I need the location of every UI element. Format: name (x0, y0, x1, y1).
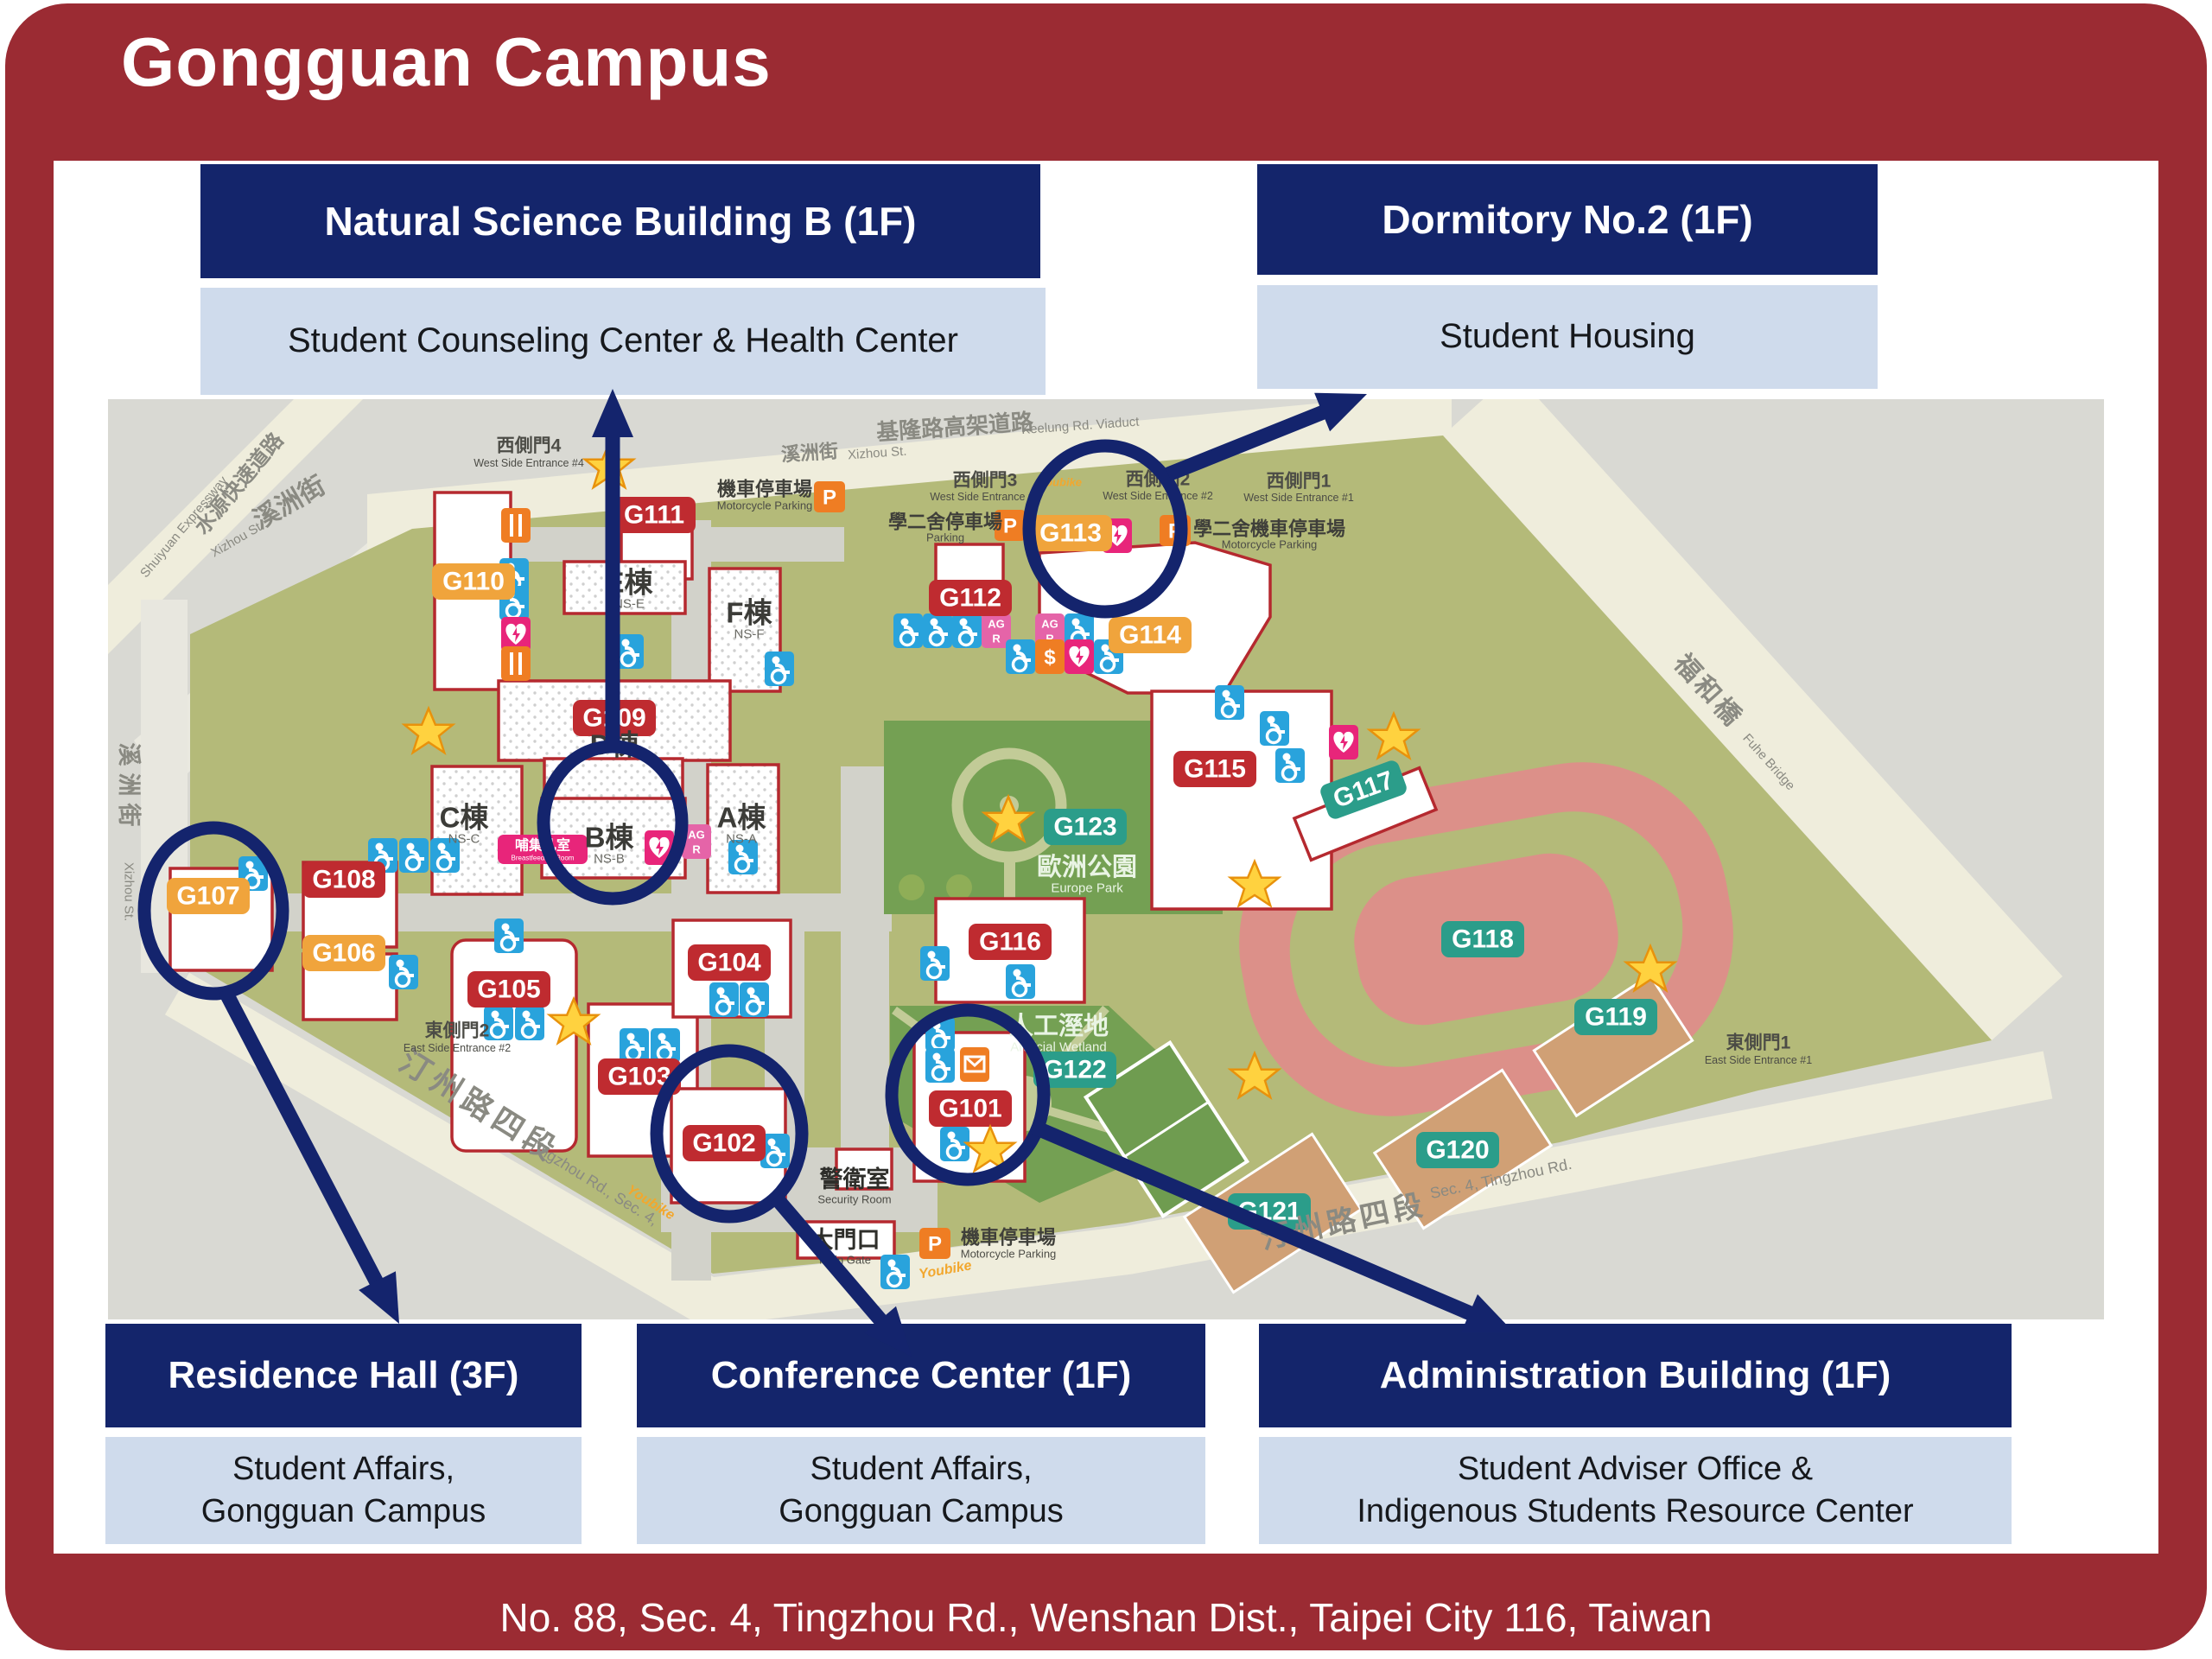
svg-text:G110: G110 (442, 568, 505, 596)
svg-text:E棟: E棟 (605, 567, 653, 599)
callout-residence-line1: Student Affairs, (232, 1448, 454, 1491)
badge-g104: G104 (688, 944, 771, 981)
svg-text:East Side Entrance #2: East Side Entrance #2 (404, 1042, 511, 1054)
callout-conference-subtitle: Student Affairs, Gongguan Campus (637, 1437, 1205, 1544)
svg-text:G106: G106 (312, 939, 375, 968)
badge-g114: G114 (1109, 617, 1192, 653)
label-wetland: 人工溼地Artificial Wetland (1008, 1012, 1109, 1055)
svg-text:學二舍停車場: 學二舍停車場 (888, 512, 1002, 533)
callout-administration-title-text: Administration Building (1F) (1380, 1354, 1891, 1397)
svg-text:G108: G108 (312, 866, 375, 894)
svg-text:哺集乳室: 哺集乳室 (515, 837, 570, 854)
svg-text:G115: G115 (1184, 755, 1246, 784)
svg-text:G112: G112 (939, 584, 1001, 613)
callout-natural-science-title: Natural Science Building B (1F) (200, 164, 1040, 278)
svg-text:溪洲街: 溪洲街 (116, 743, 142, 834)
svg-text:西側門3: 西側門3 (953, 471, 1018, 491)
svg-text:機車停車場: 機車停車場 (717, 479, 812, 500)
svg-text:歐洲公園: 歐洲公園 (1037, 853, 1137, 881)
campus-map-svg: P AG R $ (108, 399, 2104, 1319)
svg-text:Motorcycle Parking: Motorcycle Parking (961, 1248, 1057, 1261)
badge-g101: G101 (929, 1090, 1012, 1127)
svg-text:Main Gate: Main Gate (819, 1254, 871, 1267)
callout-natural-science-title-text: Natural Science Building B (1F) (325, 198, 917, 245)
badge-g107: G107 (167, 878, 250, 914)
callout-administration-line1: Student Adviser Office & (1458, 1448, 1813, 1491)
svg-text:Parking: Parking (926, 531, 964, 544)
callout-residence-title: Residence Hall (3F) (105, 1324, 582, 1427)
address-bar: No. 88, Sec. 4, Tingzhou Rd., Wenshan Di… (0, 1585, 2212, 1650)
callout-conference-line2: Gongguan Campus (779, 1491, 1064, 1533)
svg-text:Security Room: Security Room (817, 1193, 891, 1206)
svg-text:G111: G111 (624, 501, 684, 530)
breastfeeding-room-badge: 哺集乳室 Breastfeeding Room (498, 835, 588, 864)
badge-g103: G103 (598, 1058, 681, 1095)
svg-text:G104: G104 (697, 949, 761, 977)
tree-icon (899, 874, 925, 900)
callout-residence-subtitle: Student Affairs, Gongguan Campus (105, 1437, 582, 1544)
label-main-gate: 大門口Main Gate (810, 1227, 880, 1267)
svg-text:G119: G119 (1585, 1003, 1647, 1032)
callout-conference-title: Conference Center (1F) (637, 1324, 1205, 1427)
svg-text:東側門2: 東側門2 (425, 1021, 490, 1041)
svg-text:Artificial Wetland: Artificial Wetland (1010, 1040, 1106, 1055)
badge-g119: G119 (1574, 999, 1657, 1035)
svg-text:東側門1: 東側門1 (1726, 1033, 1791, 1053)
svg-text:C棟: C棟 (440, 802, 490, 834)
campus-map: P AG R $ (108, 399, 2104, 1319)
badge-g115: G115 (1173, 751, 1256, 787)
callout-natural-science-subtitle-text: Student Counseling Center & Health Cente… (288, 319, 958, 363)
svg-text:警衛室: 警衛室 (820, 1166, 890, 1192)
building-ns-d2 (544, 759, 683, 802)
badge-g113: G113 (1029, 515, 1112, 551)
svg-text:G101: G101 (938, 1095, 1001, 1123)
svg-text:西側門1: 西側門1 (1267, 472, 1332, 492)
svg-text:East Side Entrance #1: East Side Entrance #1 (1705, 1054, 1812, 1066)
label-moto-parking-gate: 機車停車場Motorcycle Parking (961, 1227, 1057, 1261)
svg-text:G120: G120 (1426, 1136, 1489, 1165)
svg-text:G105: G105 (477, 976, 540, 1004)
svg-text:Motorcycle Parking: Motorcycle Parking (717, 499, 813, 512)
svg-text:Breastfeeding Room: Breastfeeding Room (512, 855, 575, 862)
callout-dormitory-title: Dormitory No.2 (1F) (1257, 164, 1878, 275)
svg-text:Europe Park: Europe Park (1051, 881, 1123, 896)
callout-dormitory-subtitle-text: Student Housing (1440, 315, 1695, 359)
callout-dormitory-title-text: Dormitory No.2 (1F) (1382, 196, 1752, 243)
svg-text:G103: G103 (607, 1063, 671, 1091)
svg-text:NS-A: NS-A (726, 832, 757, 847)
badge-g123: G123 (1044, 809, 1127, 845)
page-title: Gongguan Campus (121, 22, 772, 102)
svg-text:Motorcycle Parking: Motorcycle Parking (1222, 538, 1318, 551)
svg-text:D棟: D棟 (590, 729, 640, 761)
tree-icon (946, 874, 972, 900)
svg-text:溪洲街: 溪洲街 (780, 440, 839, 466)
address-text: No. 88, Sec. 4, Tingzhou Rd., Wenshan Di… (500, 1594, 1713, 1641)
svg-text:NS-C: NS-C (448, 832, 480, 847)
svg-text:G116: G116 (979, 928, 1041, 957)
callout-residence-title-text: Residence Hall (3F) (168, 1354, 519, 1397)
callout-conference-line1: Student Affairs, (810, 1448, 1032, 1491)
svg-text:West Side Entrance #3: West Side Entrance #3 (930, 491, 1040, 503)
svg-text:West Side Entrance #4: West Side Entrance #4 (474, 457, 584, 469)
svg-text:Xizhou St.: Xizhou St. (122, 862, 137, 921)
label-security-room: 警衛室Security Room (817, 1166, 891, 1206)
svg-text:西側門4: 西側門4 (497, 436, 562, 456)
svg-text:NS-E: NS-E (613, 597, 645, 612)
svg-text:G118: G118 (1452, 925, 1514, 954)
svg-text:機車停車場: 機車停車場 (961, 1227, 1056, 1249)
svg-text:NS-B: NS-B (594, 852, 625, 867)
svg-text:NS-F: NS-F (734, 627, 765, 642)
badge-g102: G102 (683, 1125, 766, 1161)
svg-text:G114: G114 (1119, 621, 1181, 650)
label-youbike-w3: Youbike (1039, 476, 1082, 489)
svg-text:西側門2: 西側門2 (1126, 470, 1191, 490)
badge-g116: G116 (969, 924, 1052, 960)
callout-natural-science-subtitle: Student Counseling Center & Health Cente… (200, 288, 1046, 395)
badge-g120: G120 (1416, 1132, 1499, 1168)
badge-g118: G118 (1441, 921, 1524, 957)
callout-administration-subtitle: Student Adviser Office & Indigenous Stud… (1259, 1437, 2012, 1544)
svg-text:A棟: A棟 (717, 802, 767, 834)
svg-text:G102: G102 (692, 1129, 755, 1158)
svg-text:人工溼地: 人工溼地 (1008, 1012, 1109, 1040)
svg-text:學二舍機車停車場: 學二舍機車停車場 (1193, 518, 1345, 540)
label-ns-d: D棟 (590, 729, 640, 761)
svg-text:West Side Entrance #2: West Side Entrance #2 (1103, 490, 1213, 502)
svg-text:大門口: 大門口 (810, 1227, 880, 1253)
badge-g122: G122 (1033, 1052, 1116, 1088)
svg-text:G113: G113 (1039, 519, 1102, 548)
building-g115 (1152, 691, 1332, 909)
svg-text:G122: G122 (1043, 1056, 1106, 1084)
svg-text:F棟: F棟 (726, 597, 772, 629)
label-moto-parking-nw: 機車停車場Motorcycle Parking (717, 479, 813, 512)
badge-g106: G106 (302, 935, 385, 971)
badge-g105: G105 (467, 971, 550, 1007)
label-europe-park: 歐洲公園Europe Park (1037, 853, 1137, 896)
poster: Gongguan Campus Natural Science Building… (0, 0, 2212, 1659)
callout-administration-line2: Indigenous Students Resource Center (1357, 1491, 1913, 1533)
callout-conference-title-text: Conference Center (1F) (711, 1354, 1132, 1397)
badge-g112: G112 (929, 580, 1012, 616)
svg-text:G107: G107 (176, 882, 239, 911)
badge-g108: G108 (302, 861, 385, 898)
svg-text:B棟: B棟 (585, 822, 635, 854)
callout-dormitory-subtitle: Student Housing (1257, 285, 1878, 389)
badge-g111: G111 (613, 497, 696, 533)
callout-administration-title: Administration Building (1F) (1259, 1324, 2012, 1427)
badge-g110: G110 (432, 563, 515, 600)
callout-residence-line2: Gongguan Campus (201, 1491, 486, 1533)
svg-text:West Side Entrance #1: West Side Entrance #1 (1243, 492, 1354, 504)
svg-text:G123: G123 (1053, 813, 1116, 842)
